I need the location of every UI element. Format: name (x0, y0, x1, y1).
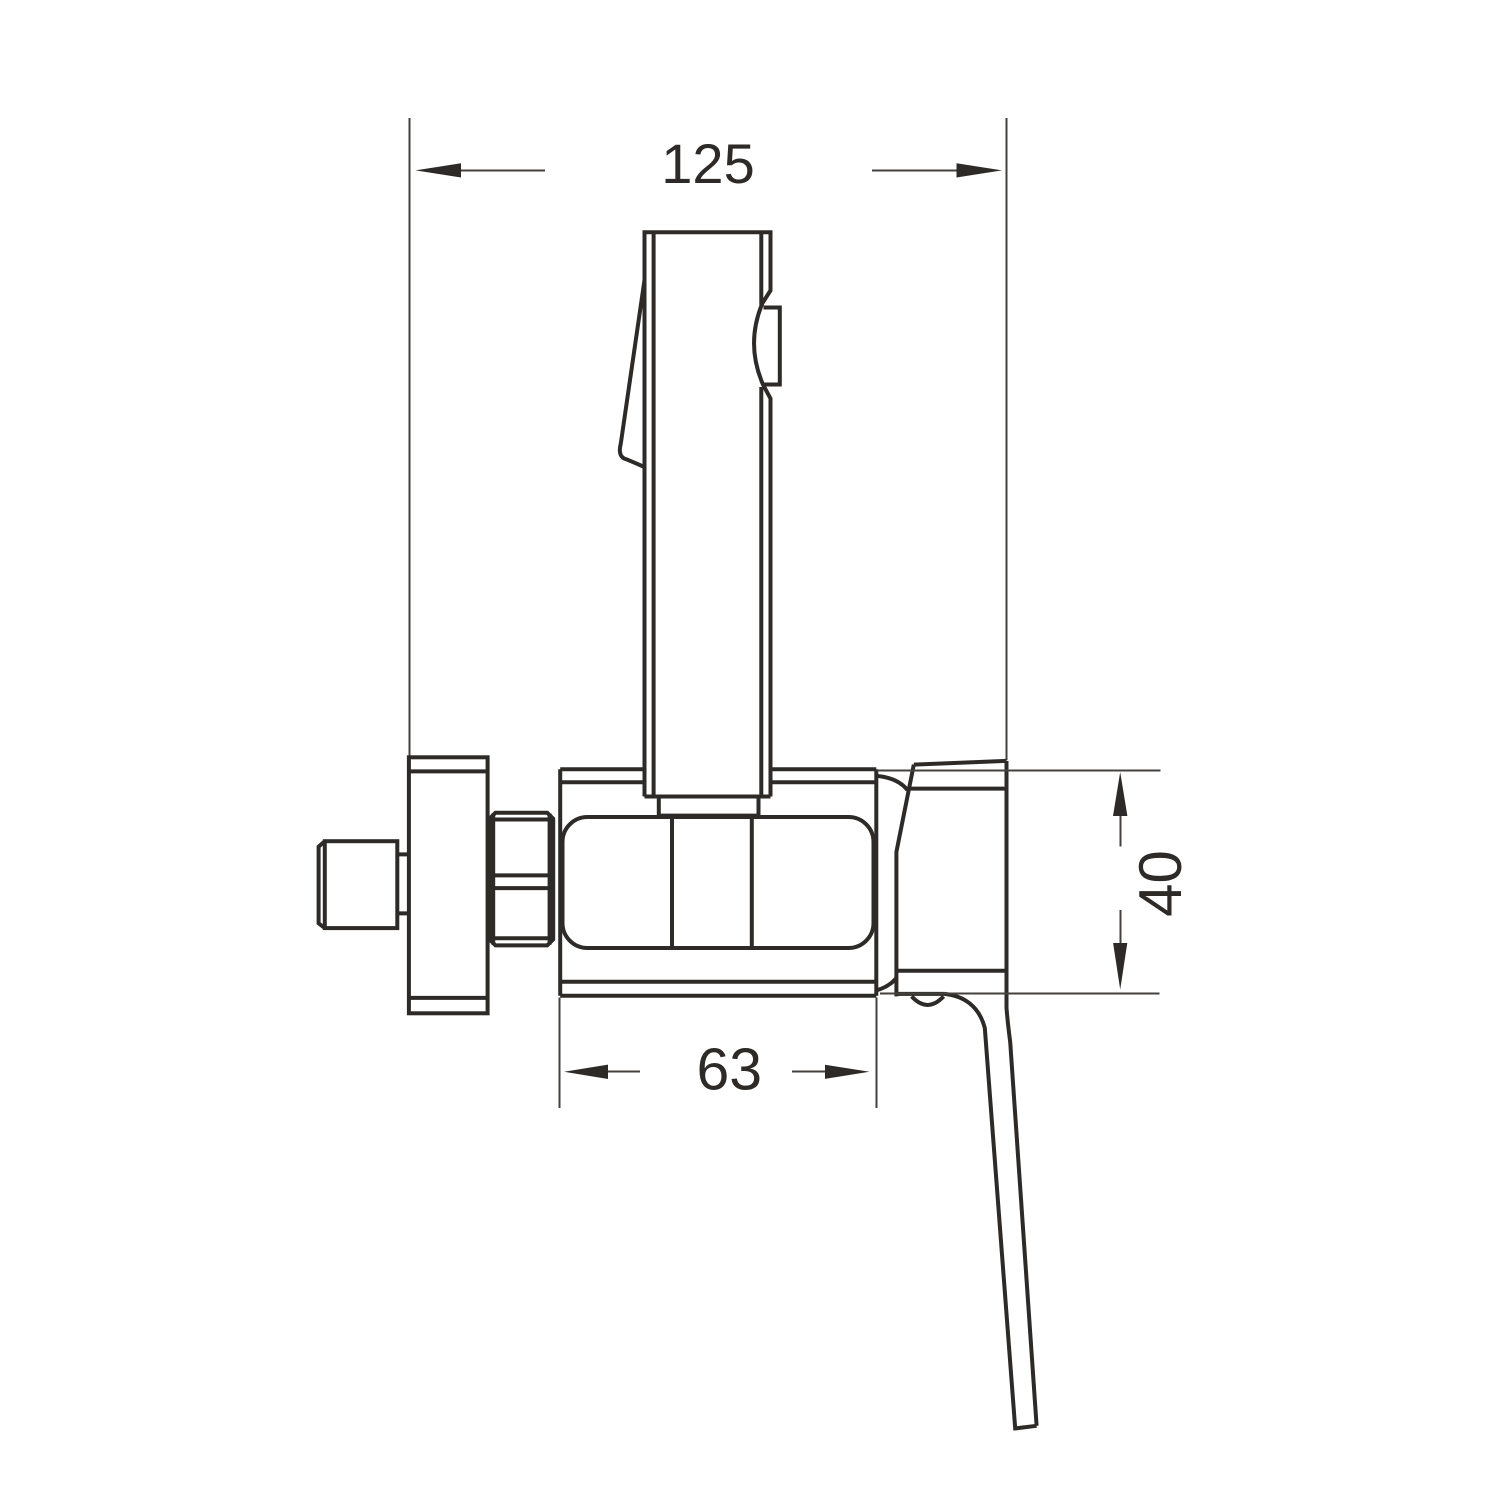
svg-text:63: 63 (696, 1036, 762, 1102)
svg-text:125: 125 (661, 132, 754, 195)
svg-text:40: 40 (1127, 850, 1194, 917)
